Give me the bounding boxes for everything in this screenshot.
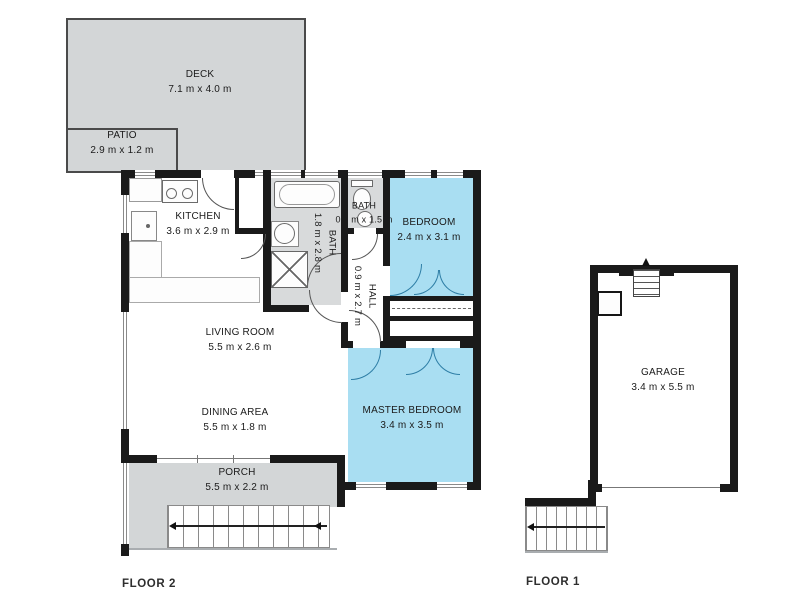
floor-plan: DECK 7.1 m x 4.0 m PATIO 2.9 m x 1.2 m K… xyxy=(0,0,800,600)
wall-master-top-a xyxy=(341,341,353,348)
label-patio-dims: 2.9 m x 1.2 m xyxy=(90,143,153,158)
wall-left-b xyxy=(121,233,129,314)
window-master-bottom-1 xyxy=(356,482,386,490)
stairs-floor2 xyxy=(167,505,330,548)
label-deck: DECK 7.1 m x 4.0 m xyxy=(168,67,231,97)
window-master-bottom-2 xyxy=(437,482,467,490)
wall-hall-left-a xyxy=(341,228,348,292)
label-master-name: MASTER BEDROOM xyxy=(363,403,462,418)
label-porch-dims: 5.5 m x 2.2 m xyxy=(205,480,268,495)
wall-master-top-b xyxy=(380,341,406,348)
label-garage: GARAGE 3.4 m x 5.5 m xyxy=(631,365,694,395)
label-hall: HALL 0.9 m x 2.7 m xyxy=(350,266,379,326)
label-bath-dims: 1.8 m x 2.8 m xyxy=(310,213,324,273)
window-top-bedroom-1 xyxy=(405,170,431,178)
floor2-title: FLOOR 2 xyxy=(122,578,176,590)
garage-stair-flange-r xyxy=(660,271,674,276)
stairs-floor2-arrow-left xyxy=(169,522,176,530)
kitchen-counter-bottom xyxy=(129,277,260,303)
sliding-door-tick-1 xyxy=(197,455,198,463)
window-top-bath-small xyxy=(348,170,382,178)
wall-master-top-c xyxy=(460,341,473,348)
wall-right xyxy=(473,170,481,490)
label-bedroom-dims: 2.4 m x 3.1 m xyxy=(397,230,460,245)
kitchen-sink-drain xyxy=(146,224,150,228)
stairs-floor2-runline xyxy=(172,525,327,527)
stairs-floor1 xyxy=(525,506,608,551)
bath-sink xyxy=(274,223,295,244)
label-bedroom-name: BEDROOM xyxy=(397,215,460,230)
label-living-name: LIVING ROOM xyxy=(206,325,275,340)
wall-closet-mid xyxy=(390,316,473,321)
label-dining-name: DINING AREA xyxy=(202,405,269,420)
entry-door-opening xyxy=(201,170,234,178)
window-top-bedroom-2 xyxy=(437,170,463,178)
label-hall-dims: 0.9 m x 2.7 m xyxy=(350,266,364,326)
label-deck-name: DECK xyxy=(168,67,231,82)
label-bath: BATH 1.8 m x 2.8 m xyxy=(310,213,339,273)
floor1-title: FLOOR 1 xyxy=(526,576,580,588)
label-dining: DINING AREA 5.5 m x 1.8 m xyxy=(202,405,269,435)
wall-pantry-left xyxy=(235,172,239,232)
label-dining-dims: 5.5 m x 1.8 m xyxy=(202,420,269,435)
window-top-entry xyxy=(255,170,301,178)
label-master-dims: 3.4 m x 3.5 m xyxy=(363,418,462,433)
window-left-living xyxy=(121,312,129,431)
sliding-door-tick-2 xyxy=(233,455,234,463)
garage-door xyxy=(602,484,720,492)
bathtub-basin xyxy=(279,184,335,205)
label-bedroom: BEDROOM 2.4 m x 3.1 m xyxy=(397,215,460,245)
window-left-porch xyxy=(121,462,129,546)
label-garage-name: GARAGE xyxy=(631,365,694,380)
window-top-kitchen xyxy=(135,170,155,178)
label-kitchen-name: KITCHEN xyxy=(166,209,229,224)
label-bath-small-dims: 0.9 m x 1.5 m xyxy=(335,213,392,227)
kitchen-counter-corner xyxy=(129,178,162,202)
label-hall-name: HALL xyxy=(364,266,378,326)
garage-wall-right xyxy=(730,265,738,492)
stairs-floor2-arrow-right xyxy=(314,522,321,530)
wall-left-a xyxy=(121,170,129,197)
garage-stair-flange-l xyxy=(619,271,633,276)
label-porch: PORCH 5.5 m x 2.2 m xyxy=(205,465,268,495)
stove-burner-2 xyxy=(182,188,193,199)
stairs-floor1-edge-line xyxy=(525,551,608,553)
label-master: MASTER BEDROOM 3.4 m x 3.5 m xyxy=(363,403,462,433)
toilet-tank xyxy=(351,180,373,187)
label-patio: PATIO 2.9 m x 1.2 m xyxy=(90,128,153,158)
shower xyxy=(271,251,308,288)
stove-burner-1 xyxy=(166,188,177,199)
wall-bath-bottom xyxy=(263,305,309,312)
hall-living-door-arc xyxy=(309,290,342,323)
garage-entry-stair xyxy=(633,269,660,297)
label-living: LIVING ROOM 5.5 m x 2.6 m xyxy=(206,325,275,355)
label-kitchen: KITCHEN 3.6 m x 2.9 m xyxy=(166,209,229,239)
label-bath-small: BATH 0.9 m x 1.5 m xyxy=(335,200,392,227)
label-patio-name: PATIO xyxy=(90,128,153,143)
label-deck-dims: 7.1 m x 4.0 m xyxy=(168,82,231,97)
wall-porch-right xyxy=(337,455,345,507)
porch-side-area xyxy=(129,462,167,548)
floor1-wall-horizontal xyxy=(525,498,596,506)
entry-door-arc xyxy=(202,178,234,210)
sliding-door-porch xyxy=(157,455,270,463)
bath-small-door-arc xyxy=(352,234,378,260)
porch-edge-line xyxy=(129,548,337,550)
garage-stair-arrow-up xyxy=(642,258,650,266)
garage-utility-box xyxy=(597,291,622,316)
closet-shelf-line xyxy=(392,308,471,309)
window-left-kitchen xyxy=(121,195,129,235)
wall-left-nub xyxy=(121,544,129,556)
window-top-bath xyxy=(305,170,338,178)
garage-wall-bottom-r xyxy=(720,484,738,492)
label-bath-small-name: BATH xyxy=(335,200,392,214)
label-garage-dims: 3.4 m x 5.5 m xyxy=(631,380,694,395)
wall-closet-top xyxy=(390,296,473,301)
label-living-dims: 5.5 m x 2.6 m xyxy=(206,340,275,355)
label-porch-name: PORCH xyxy=(205,465,268,480)
kitchen-sink xyxy=(131,211,157,241)
stairs-floor1-runline xyxy=(530,526,605,528)
stairs-floor1-arrow xyxy=(527,523,534,531)
label-kitchen-dims: 3.6 m x 2.9 m xyxy=(166,224,229,239)
